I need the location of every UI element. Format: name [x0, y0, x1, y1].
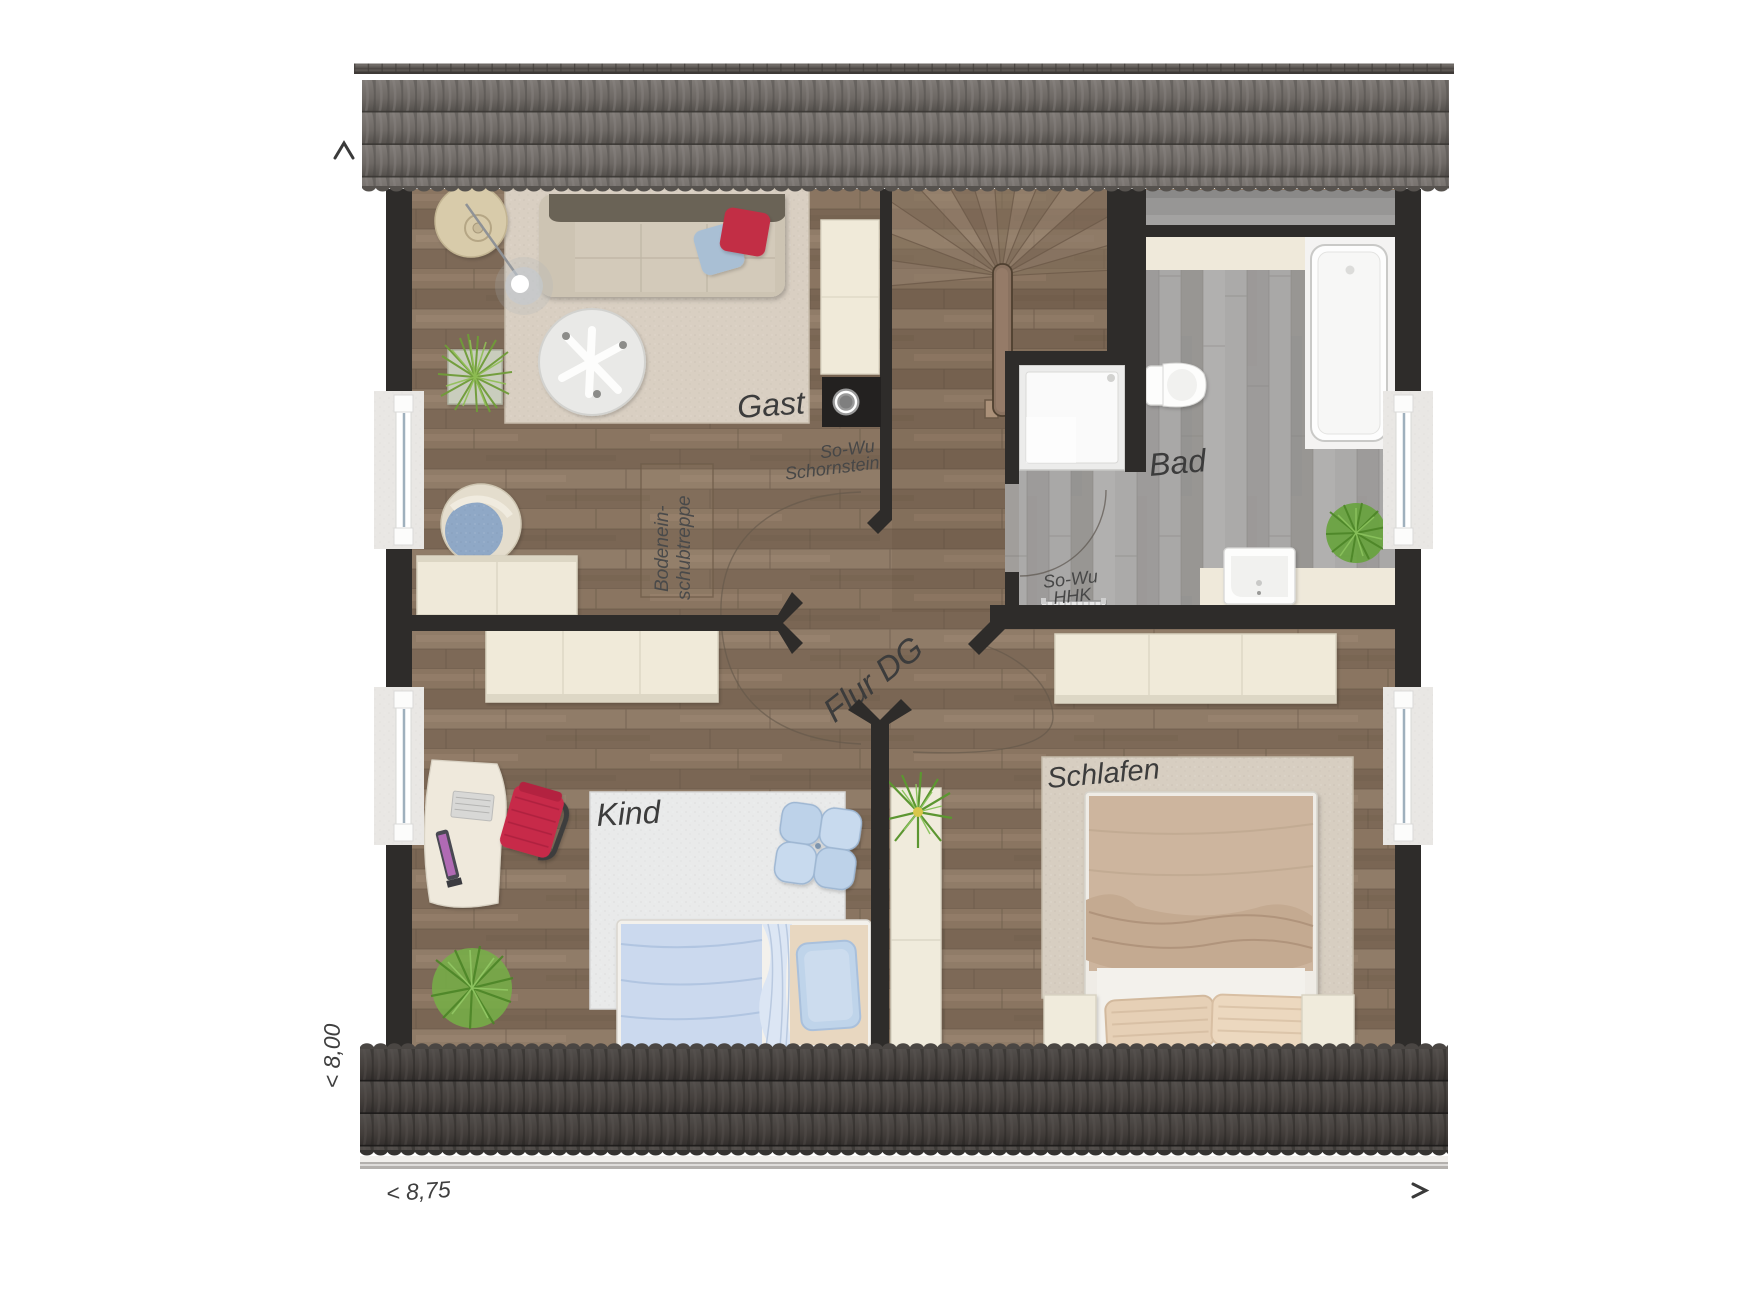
svg-text:Bodenein-: Bodenein- [652, 505, 673, 592]
svg-text:Gast: Gast [736, 384, 807, 425]
svg-text:HHK: HHK [1052, 584, 1093, 608]
svg-text:Kind: Kind [595, 794, 662, 833]
svg-text:schubtreppe: schubtreppe [674, 495, 695, 600]
svg-text:< 8,75: < 8,75 [385, 1176, 451, 1206]
svg-text:Bad: Bad [1147, 442, 1208, 483]
svg-text:< 8,00: < 8,00 [319, 1024, 345, 1089]
